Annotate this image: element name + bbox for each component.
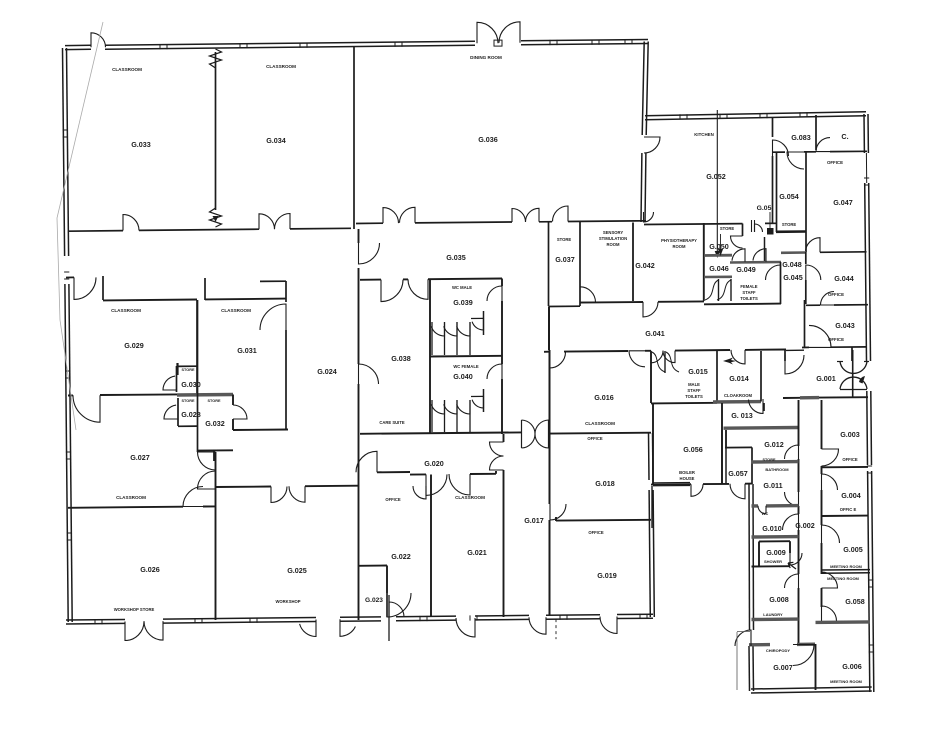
- svg-text:G.003: G.003: [840, 430, 860, 439]
- svg-text:G.016: G.016: [594, 393, 614, 402]
- svg-text:G.048: G.048: [782, 260, 802, 269]
- svg-text:CLASSROOM: CLASSROOM: [455, 495, 485, 500]
- svg-text:G.058: G.058: [845, 597, 865, 606]
- svg-text:ROOM: ROOM: [606, 242, 620, 247]
- svg-text:CLASSROOM: CLASSROOM: [221, 308, 251, 313]
- svg-text:DINING ROOM: DINING ROOM: [470, 55, 502, 60]
- svg-text:G.040: G.040: [453, 372, 473, 381]
- svg-text:G.038: G.038: [391, 354, 411, 363]
- svg-text:G.028: G.028: [181, 410, 201, 419]
- svg-text:STORE: STORE: [207, 399, 220, 403]
- svg-text:G.024: G.024: [317, 367, 337, 376]
- svg-text:MEETING ROOM: MEETING ROOM: [830, 564, 862, 569]
- svg-text:C.: C.: [841, 132, 848, 141]
- svg-text:STAFF: STAFF: [742, 290, 756, 295]
- svg-text:G.043: G.043: [835, 321, 855, 330]
- svg-text:SENSORY: SENSORY: [603, 230, 624, 235]
- svg-text:WORKSHOP: WORKSHOP: [275, 599, 300, 604]
- svg-text:G.007: G.007: [773, 663, 793, 672]
- svg-text:G.004: G.004: [841, 491, 861, 500]
- svg-text:G.014: G.014: [729, 374, 749, 383]
- svg-text:STAFF: STAFF: [687, 388, 701, 393]
- svg-text:G.037: G.037: [555, 255, 575, 264]
- svg-text:TOILETS: TOILETS: [685, 394, 703, 399]
- svg-text:G.026: G.026: [140, 565, 160, 574]
- svg-text:G.023: G.023: [365, 597, 383, 604]
- svg-text:CLASSROOM: CLASSROOM: [112, 67, 142, 72]
- svg-text:FEMALE: FEMALE: [740, 284, 757, 289]
- svg-text:G.046: G.046: [709, 264, 729, 273]
- svg-text:STORE: STORE: [181, 368, 194, 372]
- svg-text:WC MALE: WC MALE: [452, 285, 472, 290]
- svg-text:G.029: G.029: [124, 341, 144, 350]
- svg-text:OFFICE: OFFICE: [827, 160, 843, 165]
- svg-text:STORE: STORE: [762, 458, 775, 462]
- svg-text:OFFICE: OFFICE: [588, 530, 604, 535]
- svg-text:G.019: G.019: [597, 571, 617, 580]
- svg-text:MEETING ROOM: MEETING ROOM: [827, 576, 859, 581]
- svg-text:G.047: G.047: [833, 198, 853, 207]
- svg-text:G. 013: G. 013: [731, 411, 753, 420]
- svg-text:G.030: G.030: [181, 380, 201, 389]
- svg-text:G.011: G.011: [763, 481, 782, 490]
- svg-text:G.032: G.032: [205, 419, 225, 428]
- svg-text:STORE: STORE: [782, 222, 797, 227]
- svg-text:G.025: G.025: [287, 566, 307, 575]
- svg-text:CHIROPODY: CHIROPODY: [766, 648, 791, 653]
- svg-text:G.005: G.005: [843, 545, 863, 554]
- svg-text:G.049: G.049: [736, 265, 756, 274]
- svg-text:STORE: STORE: [557, 237, 572, 242]
- svg-text:G.027: G.027: [130, 453, 150, 462]
- svg-text:PHYSIOTHERAPY: PHYSIOTHERAPY: [661, 238, 697, 243]
- svg-text:OFFICE: OFFICE: [842, 457, 858, 462]
- svg-text:G.044: G.044: [834, 274, 854, 283]
- svg-text:KITCHEN: KITCHEN: [694, 132, 714, 137]
- svg-text:BOILER: BOILER: [679, 470, 695, 475]
- svg-text:G.05: G.05: [757, 205, 772, 212]
- svg-text:MALE: MALE: [688, 382, 700, 387]
- svg-text:G.045: G.045: [783, 273, 803, 282]
- svg-text:G.057: G.057: [728, 469, 748, 478]
- svg-text:TOILETS: TOILETS: [740, 296, 758, 301]
- svg-text:OFFICE: OFFICE: [587, 436, 603, 441]
- svg-text:OFFICE: OFFICE: [828, 337, 844, 342]
- svg-text:CLASSROOM: CLASSROOM: [111, 308, 141, 313]
- svg-text:CLASSROOM: CLASSROOM: [266, 64, 296, 69]
- svg-text:CLOAKROOM: CLOAKROOM: [724, 393, 752, 398]
- svg-text:G.056: G.056: [683, 445, 703, 454]
- svg-text:G.009: G.009: [766, 548, 786, 557]
- svg-text:WC FEMALE: WC FEMALE: [453, 364, 479, 369]
- svg-text:G.021: G.021: [467, 548, 487, 557]
- svg-text:ROOM: ROOM: [672, 244, 686, 249]
- svg-text:G.042: G.042: [635, 261, 655, 270]
- svg-text:G.020: G.020: [424, 459, 444, 468]
- svg-text:G.006: G.006: [842, 662, 862, 671]
- svg-text:LAUNDRY: LAUNDRY: [763, 612, 783, 617]
- svg-text:WC: WC: [762, 511, 769, 516]
- svg-text:G.015: G.015: [688, 367, 708, 376]
- svg-text:STORE: STORE: [720, 226, 735, 231]
- svg-text:MEETING ROOM: MEETING ROOM: [830, 679, 862, 684]
- svg-text:G.052: G.052: [706, 172, 726, 181]
- svg-text:G.031: G.031: [237, 346, 257, 355]
- svg-text:SHOWER: SHOWER: [764, 559, 782, 564]
- svg-text:G.036: G.036: [478, 135, 498, 144]
- svg-text:G.083: G.083: [791, 133, 811, 142]
- svg-text:G.039: G.039: [453, 298, 473, 307]
- svg-text:G.022: G.022: [391, 552, 411, 561]
- svg-text:G.041: G.041: [645, 329, 665, 338]
- svg-text:BATHROOM: BATHROOM: [765, 467, 789, 472]
- svg-text:G.002: G.002: [795, 521, 815, 530]
- svg-text:G.001: G.001: [816, 374, 836, 383]
- svg-text:STORE: STORE: [181, 399, 194, 403]
- svg-text:G.008: G.008: [769, 595, 789, 604]
- svg-text:CLASSROOM: CLASSROOM: [116, 495, 146, 500]
- svg-text:OFFICE: OFFICE: [828, 292, 844, 297]
- svg-text:G.054: G.054: [779, 192, 799, 201]
- svg-text:CLASSROOM: CLASSROOM: [585, 421, 615, 426]
- svg-text:G.033: G.033: [131, 140, 151, 149]
- svg-text:G.050: G.050: [709, 242, 729, 251]
- svg-text:G.035: G.035: [446, 253, 466, 262]
- svg-text:HOUSE: HOUSE: [680, 476, 695, 481]
- svg-text:WORKSHOP STORE: WORKSHOP STORE: [114, 607, 155, 612]
- svg-text:CARE SUITE: CARE SUITE: [379, 420, 405, 425]
- svg-text:G.017: G.017: [524, 516, 544, 525]
- svg-text:G.034: G.034: [266, 136, 286, 145]
- svg-text:G.018: G.018: [595, 479, 615, 488]
- svg-text:STIMULATION: STIMULATION: [599, 236, 627, 241]
- svg-text:G.010: G.010: [762, 524, 782, 533]
- svg-text:OFFICE: OFFICE: [385, 497, 401, 502]
- svg-text:OFFIC E: OFFIC E: [840, 507, 857, 512]
- svg-text:G.012: G.012: [764, 440, 784, 449]
